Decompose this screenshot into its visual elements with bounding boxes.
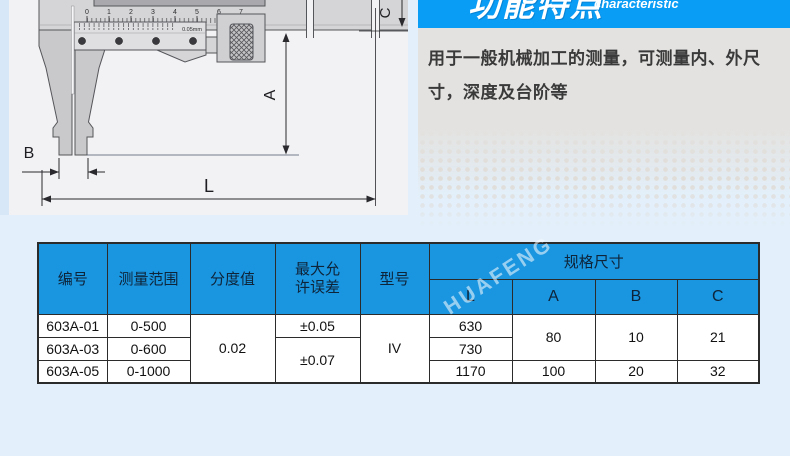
header-cell-L: L	[429, 279, 512, 314]
cell-range: 0-600	[107, 337, 190, 360]
left-edge-strip	[0, 0, 9, 215]
svg-text:3: 3	[151, 9, 155, 16]
cell-graduation: 0.02	[190, 314, 275, 383]
table-row: 603A-01 0-500 0.02 ±0.05 IV 630 80 10 21	[38, 314, 759, 337]
svg-text:2: 2	[129, 9, 133, 16]
header-cell-model: 型号	[360, 243, 429, 314]
fine-adjust-carriage	[217, 14, 265, 62]
cell-C: 21	[677, 314, 759, 360]
cell-B: 10	[595, 314, 677, 360]
cell-A: 100	[512, 360, 595, 383]
feature-description-text: 用于一般机械加工的测量，可测量内、外尺寸，深度及台阶等	[418, 28, 790, 110]
dimension-label-A: A	[262, 89, 279, 100]
slider-top-rail	[94, 0, 265, 6]
header-cell-max-error: 最大允 许误差	[275, 243, 360, 314]
caliper-diagram: 0 1 2 3 4 5 6 7 0.05mm	[9, 0, 408, 215]
svg-text:0: 0	[85, 9, 89, 16]
header-cell-graduation: 分度值	[190, 243, 275, 314]
header-cell-id: 编号	[38, 243, 107, 314]
header-cell-C: C	[677, 279, 759, 314]
halftone-fade-decoration	[418, 120, 790, 232]
cell-id: 603A-03	[38, 337, 107, 360]
svg-text:1: 1	[107, 9, 111, 16]
knurled-wheel	[230, 24, 253, 60]
header-max-error-line1: 最大允	[276, 261, 360, 279]
cell-model: IV	[360, 314, 429, 383]
vernier-resolution-label: 0.05mm	[182, 27, 202, 33]
feature-title-en: characteristic	[594, 0, 679, 11]
spec-table: 编号 测量范围 分度值 最大允 许误差 型号 规格尺寸 L A B C 603A…	[37, 242, 760, 384]
cell-B: 20	[595, 360, 677, 383]
cell-range: 0-1000	[107, 360, 190, 383]
cell-error: ±0.07	[275, 337, 360, 383]
dimension-label-C: C	[377, 7, 394, 18]
cell-L: 730	[429, 337, 512, 360]
header-cell-B: B	[595, 279, 677, 314]
feature-title-cn: 功能特点	[468, 0, 604, 26]
header-cell-dims-group: 规格尺寸	[429, 243, 759, 279]
header-cell-range: 测量范围	[107, 243, 190, 314]
header-max-error-line2: 许误差	[276, 279, 360, 297]
page: 0 1 2 3 4 5 6 7 0.05mm	[0, 0, 790, 456]
cell-id: 603A-01	[38, 314, 107, 337]
svg-text:4: 4	[173, 9, 177, 16]
feature-banner: 功能特点 characteristic	[418, 0, 790, 28]
dimension-B	[22, 158, 105, 179]
feature-description-box: 用于一般机械加工的测量，可测量内、外尺寸，深度及台阶等	[418, 28, 790, 120]
svg-text:5: 5	[195, 9, 199, 16]
cell-range: 0-500	[107, 314, 190, 337]
cell-error: ±0.05	[275, 314, 360, 337]
dimension-label-L: L	[204, 176, 214, 196]
cell-id: 603A-05	[38, 360, 107, 383]
header-cell-A: A	[512, 279, 595, 314]
dimension-label-B: B	[24, 145, 35, 162]
jaw-slot	[71, 6, 74, 94]
cell-L: 1170	[429, 360, 512, 383]
caliper-diagram-panel: 0 1 2 3 4 5 6 7 0.05mm	[9, 0, 408, 215]
cell-A: 80	[512, 314, 595, 360]
cell-L: 630	[429, 314, 512, 337]
cell-C: 32	[677, 360, 759, 383]
